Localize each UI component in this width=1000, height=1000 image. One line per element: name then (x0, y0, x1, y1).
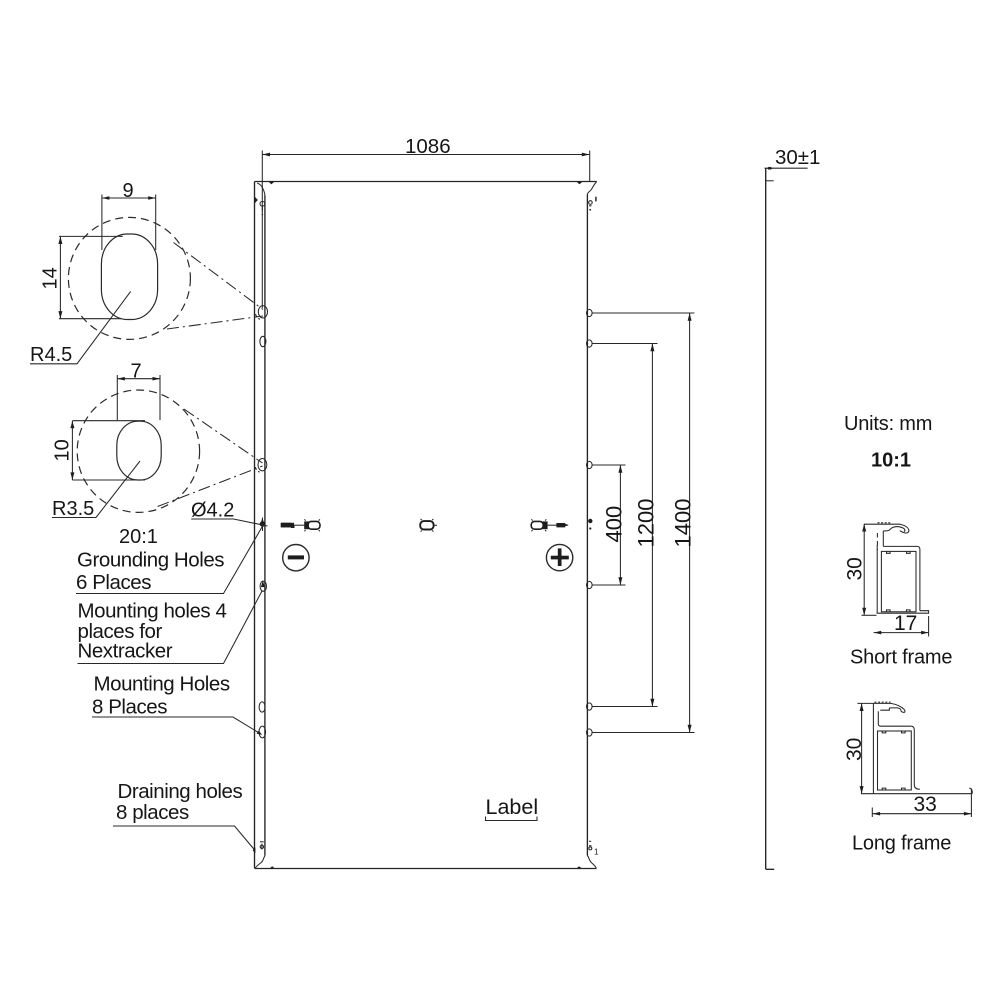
svg-text:400: 400 (601, 506, 626, 543)
svg-text:7: 7 (131, 361, 142, 383)
svg-text:14: 14 (40, 267, 62, 289)
svg-text:R3.5: R3.5 (52, 498, 94, 520)
svg-text:30: 30 (843, 738, 866, 761)
svg-text:1400: 1400 (671, 499, 696, 548)
svg-text:1200: 1200 (633, 499, 658, 548)
svg-text:1086: 1086 (405, 135, 451, 158)
svg-text:10:1: 10:1 (871, 450, 911, 472)
svg-text:30±1: 30±1 (775, 146, 820, 169)
svg-text:6 Places: 6 Places (76, 571, 151, 594)
svg-text:10: 10 (52, 439, 74, 461)
svg-text:1: 1 (594, 848, 599, 857)
svg-text:Short frame: Short frame (850, 647, 952, 669)
svg-text:8 Places: 8 Places (92, 696, 167, 719)
svg-text:Grounding Holes: Grounding Holes (77, 549, 224, 572)
svg-text:Draining holes: Draining holes (118, 780, 243, 803)
svg-text:20:1: 20:1 (119, 526, 158, 548)
svg-text:33: 33 (914, 793, 937, 816)
svg-text:Long frame: Long frame (852, 833, 951, 855)
svg-text:8 places: 8 places (116, 801, 189, 824)
svg-text:Ø4.2: Ø4.2 (191, 500, 234, 522)
svg-text:17: 17 (894, 612, 917, 635)
svg-text:30: 30 (844, 557, 867, 580)
svg-text:Units: mm: Units: mm (844, 413, 932, 435)
svg-text:Mounting Holes: Mounting Holes (94, 673, 230, 696)
svg-text:Nextracker: Nextracker (78, 640, 173, 663)
svg-text:Label: Label (486, 795, 539, 819)
svg-text:R4.5: R4.5 (30, 344, 72, 366)
svg-text:9: 9 (123, 180, 134, 202)
